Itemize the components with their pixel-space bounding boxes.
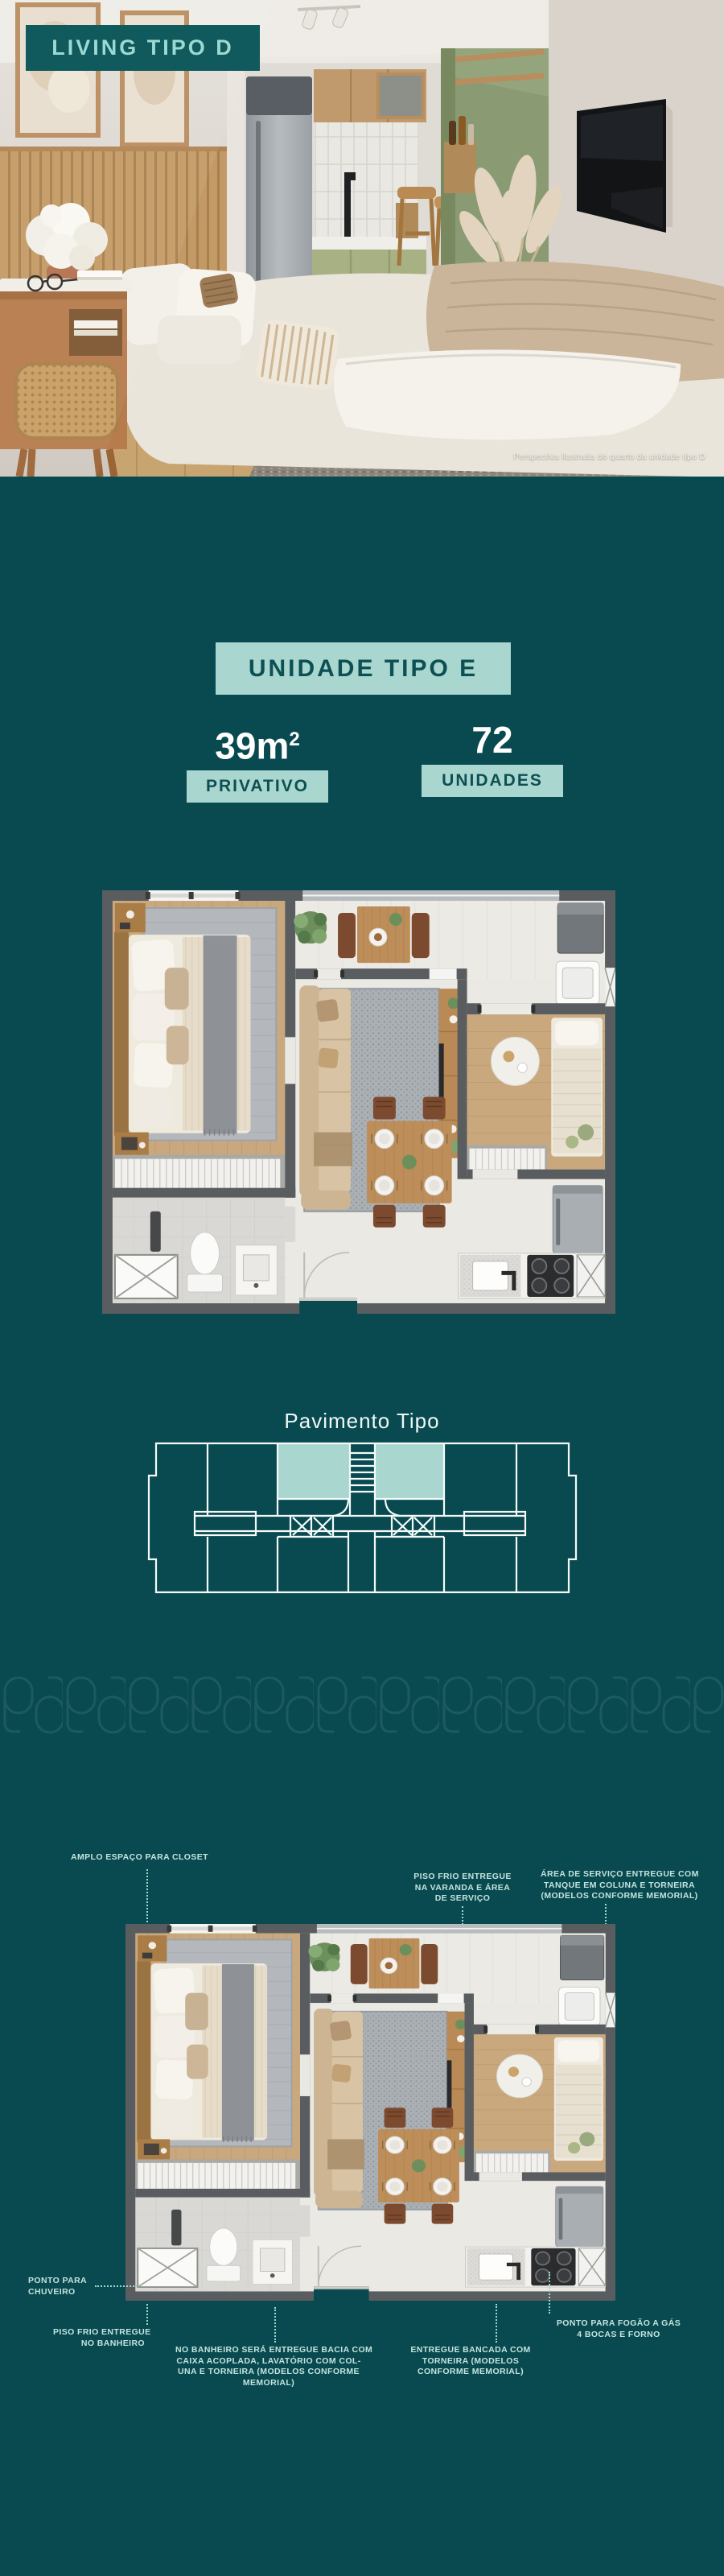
pavimento-diagram — [145, 1439, 579, 1596]
leader-line-bancada — [496, 2304, 497, 2343]
floorplan-unit-e — [102, 890, 615, 1314]
striped-pillow — [255, 319, 340, 392]
tv-icon — [577, 99, 673, 233]
floorplan-unit-e-annotated — [125, 1924, 615, 2301]
count-label-box: UNIDADES — [422, 765, 563, 797]
leader-line-chuveiro — [95, 2285, 137, 2287]
pavimento-title: Pavimento Tipo — [0, 1409, 724, 1434]
living-tipo-label: LIVING TIPO D — [26, 25, 260, 71]
bottles-icon — [444, 116, 476, 193]
unit-title-box: UNIDADE TIPO E — [216, 642, 511, 695]
hero-caption: Perspectiva ilustrada do quarto da unida… — [513, 452, 705, 461]
page: LIVING TIPO D Perspectiva ilustrada do q… — [0, 0, 724, 2576]
stat-unidades: 72 UNIDADES — [422, 721, 563, 797]
leader-line-bacia — [274, 2307, 276, 2343]
woven-pillow — [199, 272, 239, 308]
cabinet-mirror — [378, 74, 423, 118]
hero-photo: LIVING TIPO D Perspectiva ilustrada do q… — [0, 0, 724, 477]
leader-line-closet — [146, 1869, 148, 1922]
annotation-servico: ÁREA DE SERVIÇO ENTREGUE COM TANQUE EM C… — [541, 1869, 698, 1902]
living-tipo-label-text: LIVING TIPO D — [51, 35, 234, 60]
unit-title-text: UNIDADE TIPO E — [249, 655, 478, 683]
annotation-fogao: PONTO PARA FOGÃO A GÁS 4 BOCAS E FORNO — [553, 2318, 684, 2340]
sheet-fold — [334, 349, 681, 440]
area-value: 39m2 — [187, 721, 328, 764]
bed — [113, 262, 724, 477]
leader-line-piso-banheiro — [146, 2304, 148, 2325]
annotation-chuveiro: PONTO PARA CHUVEIRO — [28, 2276, 87, 2297]
stat-privativo: 39m2 PRIVATIVO — [187, 721, 328, 803]
annotation-bacia: NO BANHEIRO SERÁ ENTREGUE BACIA COM CAIX… — [175, 2345, 362, 2388]
leader-line-fogao — [549, 2272, 550, 2314]
area-label-box: PRIVATIVO — [187, 770, 328, 803]
annotation-piso-banheiro: PISO FRIO ENTREGUE NO BANHEIRO — [53, 2327, 145, 2349]
annotation-closet: AMPLO ESPAÇO PARA CLOSET — [71, 1852, 208, 1864]
hero-illustration — [0, 0, 724, 477]
annotation-bancada: ENTREGUE BANCADA COM TORNEIRA (MODELOS C… — [406, 2345, 535, 2378]
annotation-varanda: PISO FRIO ENTREGUE NA VARANDA E ÁREA DE … — [406, 1872, 519, 1905]
count-value: 72 — [422, 721, 563, 758]
brand-pattern-band — [0, 1673, 724, 1736]
